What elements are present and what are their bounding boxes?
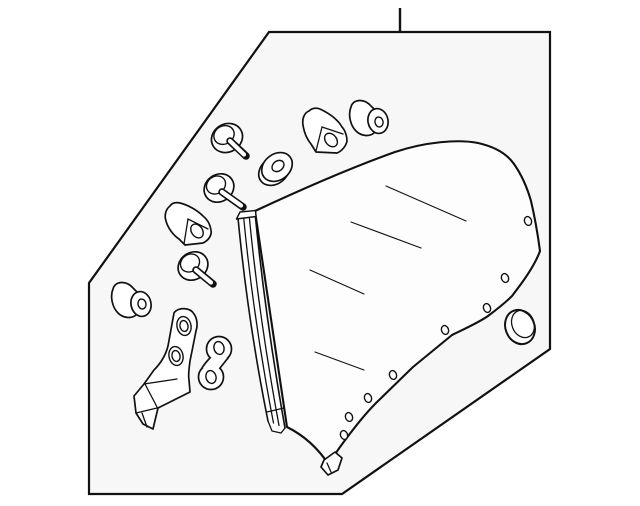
parts-diagram-page: diagram boundary panel callout leader li… [0, 0, 640, 506]
parts-diagram-canvas: diagram boundary panel callout leader li… [0, 0, 640, 506]
